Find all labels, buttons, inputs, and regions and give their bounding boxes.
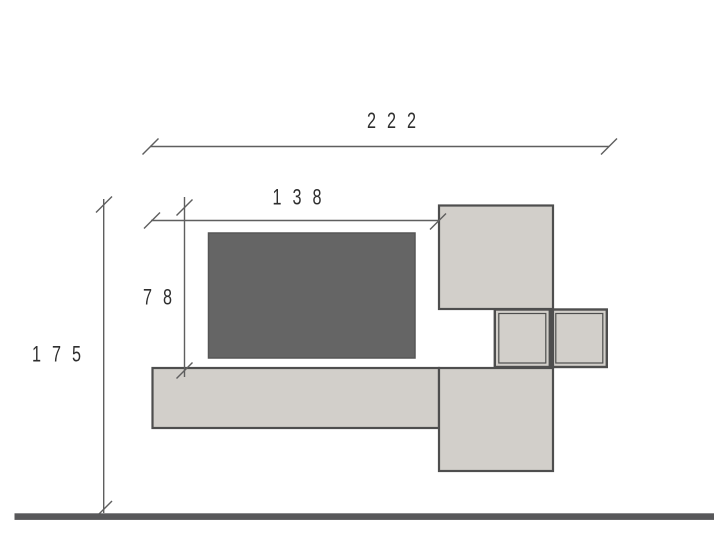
svg-text:222: 222 [367,108,427,133]
svg-text:78: 78 [143,285,183,310]
svg-text:138: 138 [272,185,332,210]
svg-text:175: 175 [32,342,92,367]
